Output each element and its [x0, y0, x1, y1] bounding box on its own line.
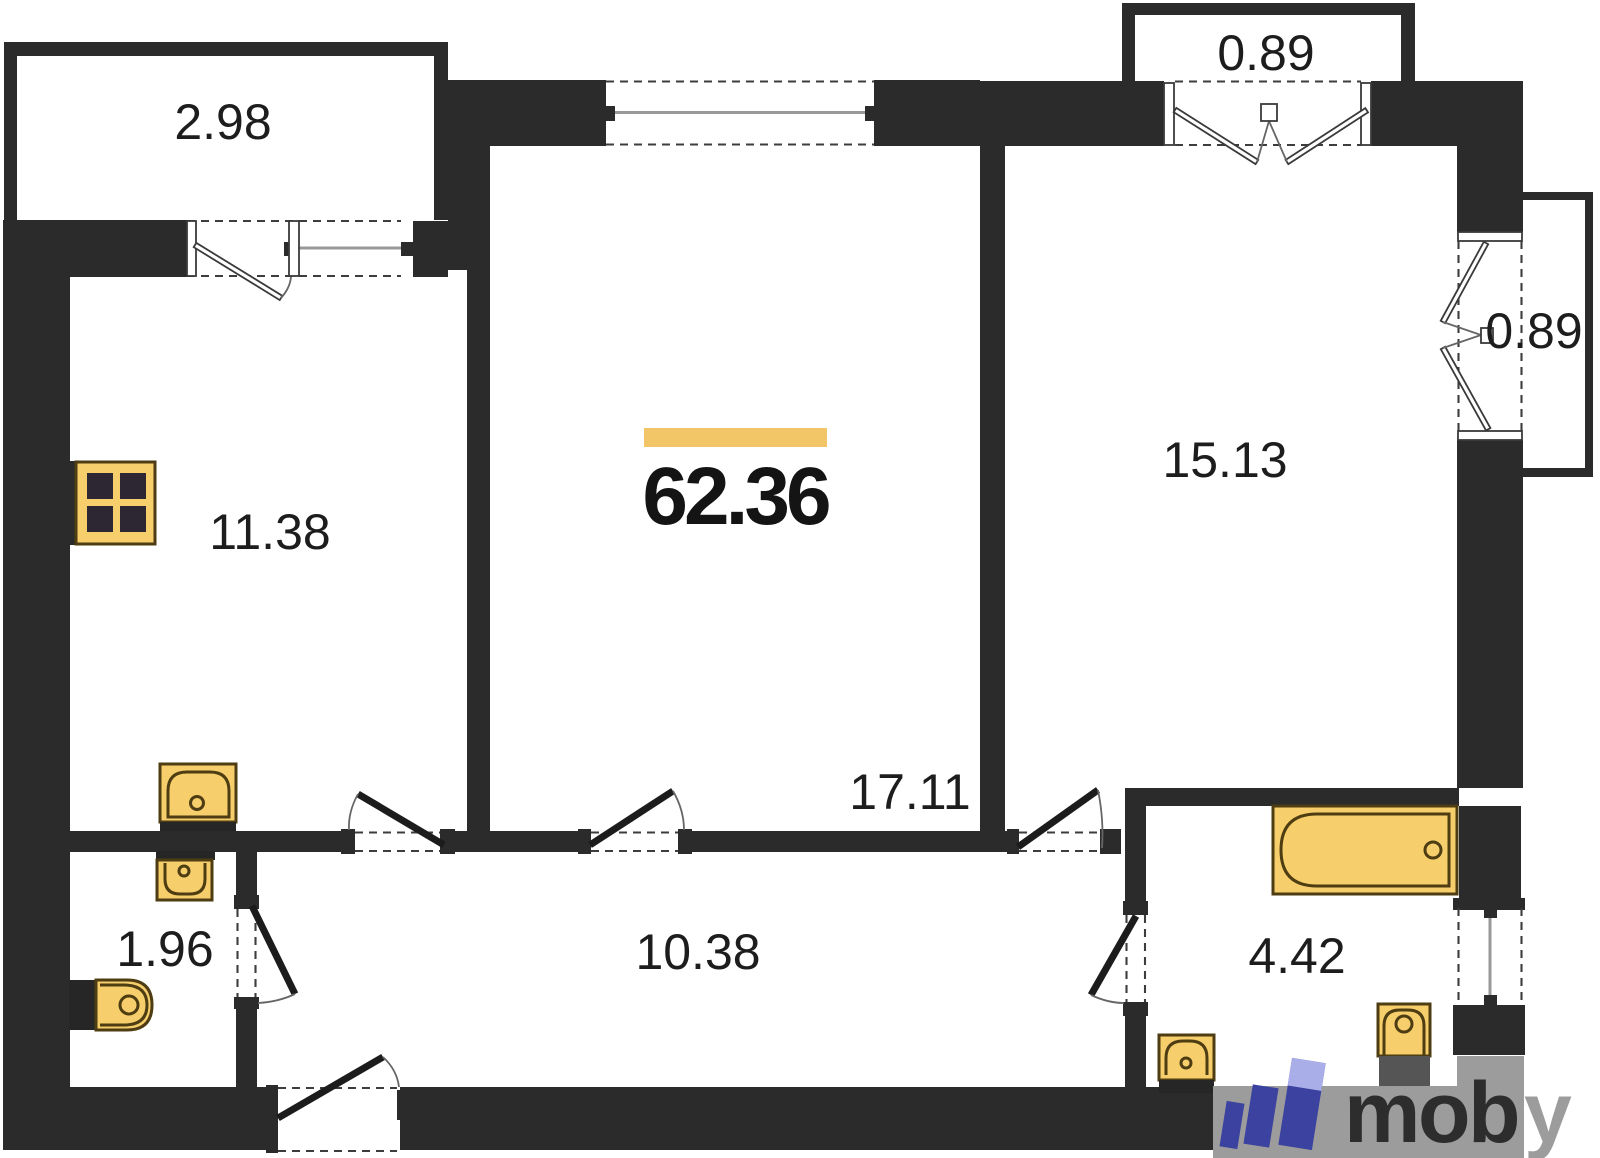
svg-text:62.36: 62.36	[642, 451, 829, 542]
svg-text:17.11: 17.11	[849, 764, 970, 820]
svg-text:1.96: 1.96	[116, 921, 213, 977]
svg-text:2.98: 2.98	[174, 94, 271, 150]
svg-text:0.89: 0.89	[1217, 25, 1314, 81]
svg-text:0.89: 0.89	[1485, 303, 1582, 359]
svg-text:4.42: 4.42	[1248, 928, 1345, 984]
svg-text:10.38: 10.38	[635, 924, 760, 980]
svg-text:mob: mob	[1344, 1065, 1518, 1158]
svg-text:15.13: 15.13	[1162, 432, 1287, 488]
svg-text:y: y	[1524, 1065, 1572, 1158]
svg-text:11.38: 11.38	[209, 504, 330, 560]
